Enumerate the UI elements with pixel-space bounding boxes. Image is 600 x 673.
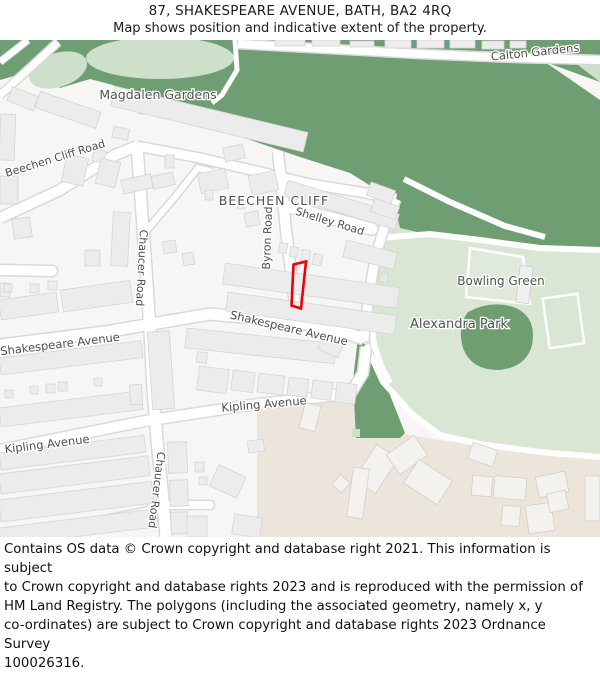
attribution-text: Contains OS data © Crown copyright and d… [0,537,600,625]
title-block: 87, SHAKESPEARE AVENUE, BATH, BA2 4RQ Ma… [0,0,600,40]
attribution-line: Contains OS data © Crown copyright and d… [4,540,596,578]
attribution-line: HM Land Registry. The polygons (includin… [4,597,596,616]
attribution-line: co-ordinates) are subject to Crown copyr… [4,616,596,654]
page-title: 87, SHAKESPEARE AVENUE, BATH, BA2 4RQ [0,0,600,19]
label-bowling-green: Bowling Green [457,274,544,288]
label-byron-road: Byron Road [260,206,275,270]
map-svg: Calton Gardens Magdalen Gardens Beechen … [0,40,600,537]
label-alexandra-park: Alexandra Park [410,317,508,332]
attribution-line: to Crown copyright and database rights 2… [4,578,596,597]
page-subtitle: Map shows position and indicative extent… [0,19,600,36]
attribution-line: 100026316. [4,654,596,673]
label-magdalen-gardens: Magdalen Gardens [99,87,216,102]
label-beechen-cliff: BEECHEN CLIFF [219,193,329,208]
page: { "title": { "line1": "87, SHAKESPEARE A… [0,0,600,625]
map-canvas: Calton Gardens Magdalen Gardens Beechen … [0,40,600,537]
